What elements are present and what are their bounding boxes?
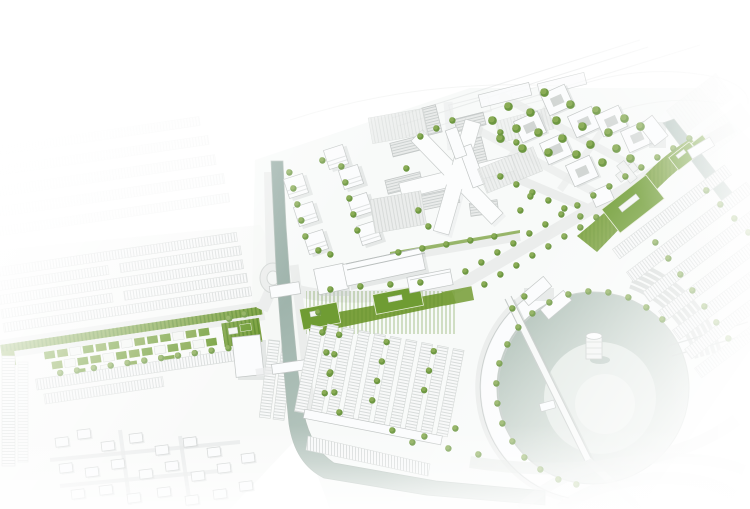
faint-upper-rows (0, 114, 230, 238)
masterplan-rendering (0, 0, 750, 509)
masterplan-svg (0, 0, 750, 509)
